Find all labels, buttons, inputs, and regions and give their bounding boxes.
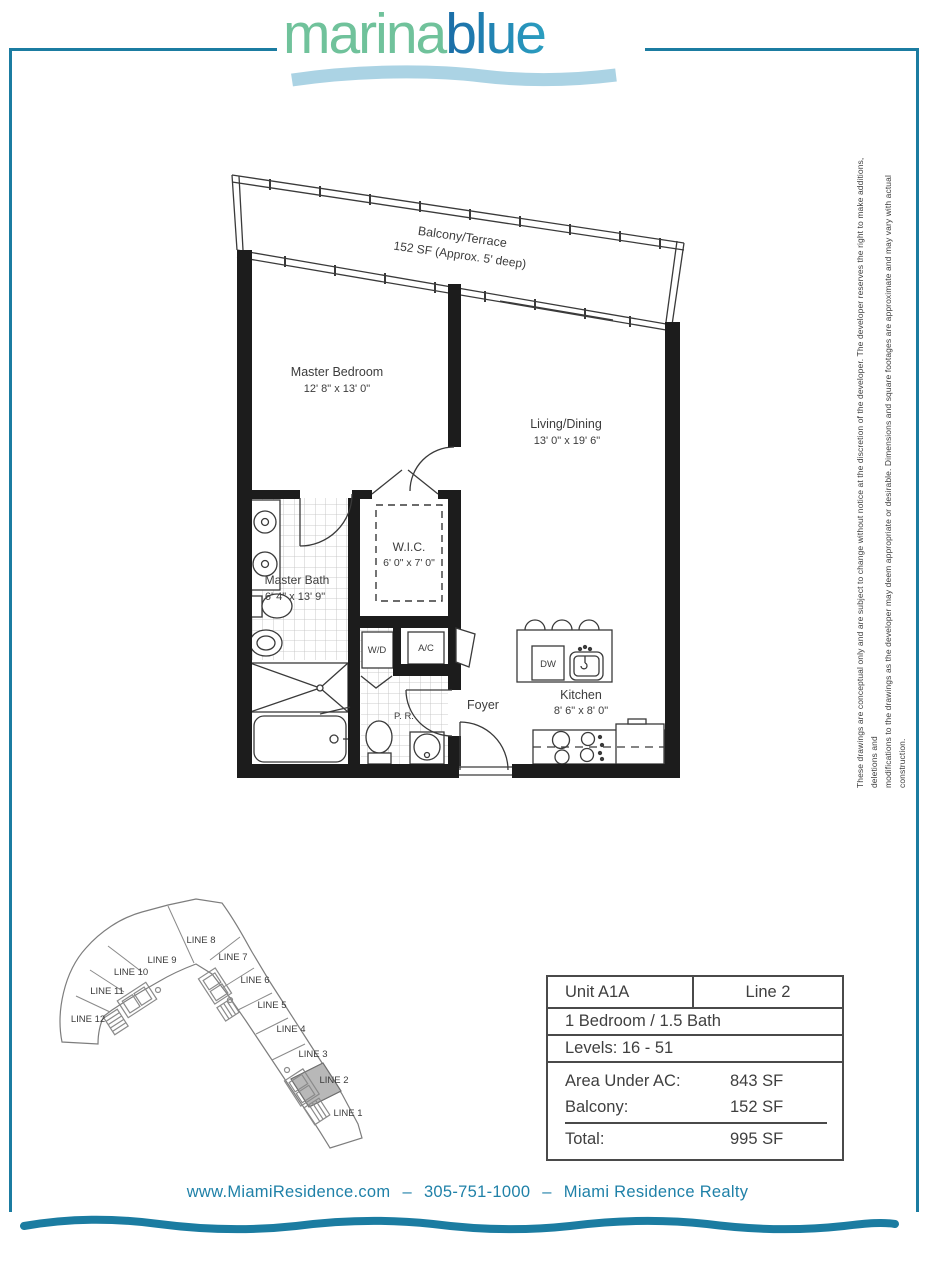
dw-label: DW	[540, 659, 556, 670]
line-6-label: LINE 6	[240, 975, 269, 986]
total-value: 995 SF	[730, 1130, 826, 1149]
master-bath-label: Master Bath	[265, 573, 330, 587]
line-2-label: LINE 2	[319, 1075, 348, 1086]
total-divider	[565, 1122, 827, 1124]
bedroom-door-arc	[410, 447, 454, 491]
master-bath-dims: 6' 4" x 13' 9"	[265, 591, 325, 603]
brochure-page: marinablue These drawings are conceptual…	[0, 0, 935, 1266]
tub-faucet	[330, 735, 338, 743]
logo-marina: marina	[283, 2, 445, 66]
building-cores	[104, 968, 330, 1125]
total-row: Total: 995 SF	[565, 1126, 826, 1152]
line-8-label: LINE 8	[186, 935, 215, 946]
line-11-label: LINE 11	[90, 986, 124, 997]
footer-separator: –	[542, 1183, 551, 1201]
levels: Levels: 16 - 51	[548, 1039, 673, 1058]
logo-underline-wave	[292, 72, 616, 80]
wd-label: W/D	[368, 645, 387, 656]
unit-line: Line 2	[694, 983, 842, 1002]
bar-stools	[525, 620, 599, 630]
shower	[250, 663, 348, 712]
floor-plan: Balcony/Terrace 152 SF (Approx. 5' deep)…	[205, 160, 705, 790]
balcony-row: Balcony: 152 SF	[565, 1094, 826, 1120]
unit-info-table: Unit A1A Line 2 1 Bedroom / 1.5 Bath Lev…	[546, 975, 844, 1161]
kitchen-label: Kitchen	[560, 688, 602, 702]
wic-label: W.I.C.	[393, 540, 426, 554]
bottom-wave	[24, 1220, 895, 1229]
logo-blue: blue	[445, 2, 545, 66]
living-dining-dims: 13' 0" x 19' 6"	[534, 435, 601, 447]
border-top-left	[9, 48, 277, 51]
border-right	[916, 48, 919, 1212]
line-12-label: LINE 12	[71, 1014, 105, 1025]
fridge-handle	[628, 719, 646, 724]
area-under-ac-label: Area Under AC:	[565, 1072, 730, 1091]
entry-door	[460, 722, 508, 770]
border-top-right	[645, 48, 919, 51]
line-9-label: LINE 9	[147, 955, 176, 966]
marinablue-logo: marinablue	[283, 6, 545, 63]
wic-double-doors	[372, 470, 438, 494]
table-row-unit: Unit A1A Line 2	[548, 977, 842, 1007]
wic-dims: 6' 0" x 7' 0"	[383, 557, 435, 569]
table-row-levels: Levels: 16 - 51	[548, 1034, 842, 1061]
ac-label: A/C	[418, 643, 434, 654]
ac-closet-door	[456, 628, 475, 667]
disclaimer-line-1: These drawings are conceptual only and a…	[853, 128, 881, 788]
line-1-label: LINE 1	[333, 1108, 362, 1119]
site-plan: LINE 1 LINE 2 LINE 3 LINE 4 LINE 5 LINE …	[40, 890, 390, 1160]
table-row-bedbath: 1 Bedroom / 1.5 Bath	[548, 1007, 842, 1034]
living-dining-label: Living/Dining	[530, 417, 602, 431]
total-label: Total:	[565, 1130, 730, 1149]
master-bedroom-label: Master Bedroom	[291, 365, 383, 379]
foyer-label: Foyer	[467, 698, 499, 712]
entry-threshold	[459, 767, 512, 775]
area-under-ac-row: Area Under AC: 843 SF	[565, 1068, 826, 1094]
master-bedroom-dims: 12' 8" x 13' 0"	[304, 383, 371, 395]
balcony-label: Balcony:	[565, 1098, 730, 1117]
footer-phone: 305-751-1000	[424, 1183, 530, 1201]
disclaimer-line-2: modifications to the drawings as the dev…	[881, 128, 909, 788]
bed-bath: 1 Bedroom / 1.5 Bath	[548, 1012, 721, 1031]
area-under-ac-value: 843 SF	[730, 1072, 826, 1091]
line-10-label: LINE 10	[114, 967, 148, 978]
border-left	[9, 48, 12, 1212]
unit-name: Unit A1A	[548, 977, 694, 1007]
footer-company: Miami Residence Realty	[564, 1183, 749, 1201]
pr-label: P. R.	[394, 711, 414, 722]
toilet-tank	[251, 596, 262, 617]
line-5-label: LINE 5	[257, 1000, 286, 1011]
kitchen-dims: 8' 6" x 8' 0"	[554, 705, 608, 717]
footer-website: www.MiamiResidence.com	[187, 1183, 391, 1201]
balcony-value: 152 SF	[730, 1098, 826, 1117]
toilet-icon	[366, 721, 392, 753]
toilet-tank	[368, 753, 391, 764]
balcony-label: Balcony/Terrace 152 SF (Approx. 5' deep)	[393, 221, 530, 271]
line-4-label: LINE 4	[276, 1024, 305, 1035]
disclaimer-text: These drawings are conceptual only and a…	[853, 128, 909, 788]
footer-separator: –	[402, 1183, 411, 1201]
refrigerator	[616, 724, 664, 764]
line-3-label: LINE 3	[298, 1049, 327, 1060]
footer-contact: www.MiamiResidence.com–305-751-1000–Miam…	[0, 1183, 935, 1202]
table-row-areas: Area Under AC: 843 SF Balcony: 152 SF To…	[548, 1061, 842, 1159]
line-7-label: LINE 7	[218, 952, 247, 963]
